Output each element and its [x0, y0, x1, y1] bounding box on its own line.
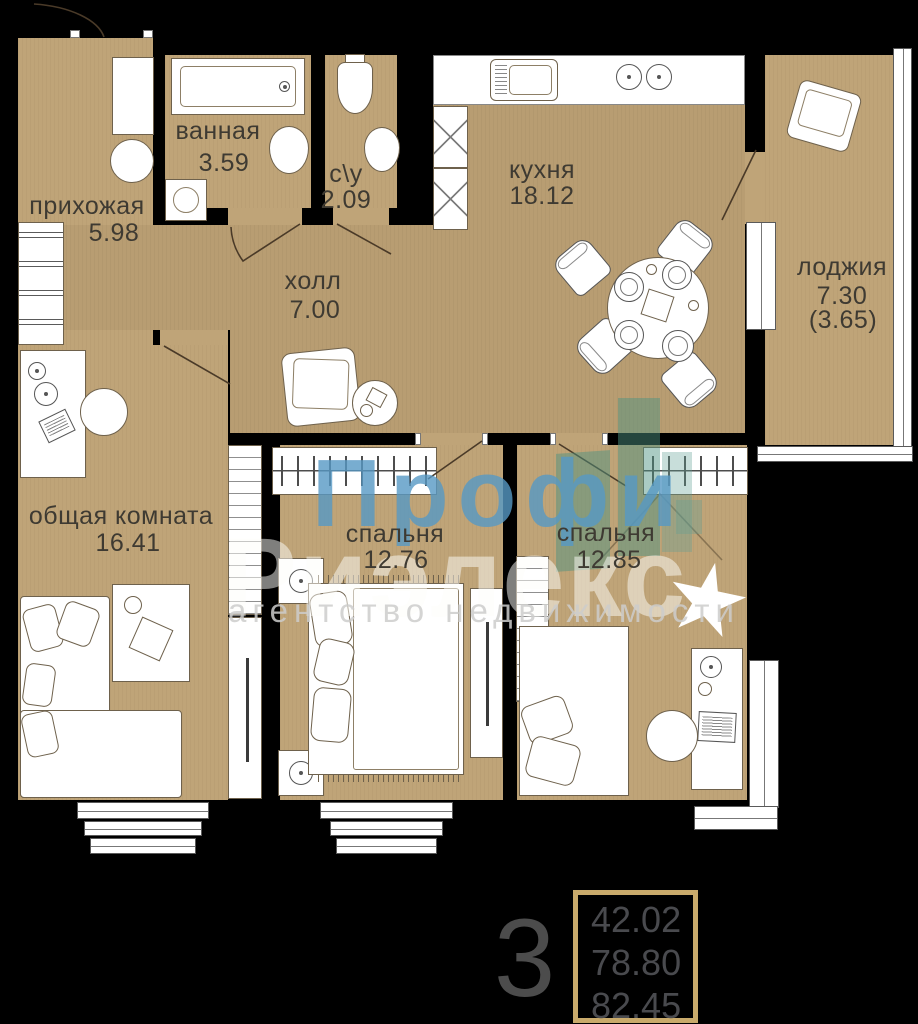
- label-entry-area: 5.98: [89, 221, 140, 246]
- label-living-name: общая комната: [29, 504, 213, 529]
- cup: [688, 300, 699, 311]
- label-wc-area: 2.09: [321, 188, 372, 213]
- window-bedroom1-sill: [330, 821, 443, 836]
- kitchen-counter: [433, 55, 745, 105]
- plate: [614, 272, 644, 302]
- loggia-glazing-right: [893, 48, 912, 462]
- loggia-glazing-bottom: [757, 446, 913, 462]
- hall-armchair: [280, 346, 361, 427]
- tv-console-living: [228, 617, 262, 799]
- window-bedroom2-corner-v: [749, 660, 779, 808]
- floor-plan-image: Профи Риэлекс агентство недвижимости при…: [0, 0, 918, 1024]
- cup: [646, 264, 657, 275]
- coffee-cup: [124, 596, 142, 614]
- label-bathroom-area: 3.59: [199, 151, 250, 176]
- office-chair: [80, 388, 128, 436]
- desk-lamp-2: [700, 656, 722, 678]
- side-table-cup: [360, 404, 373, 417]
- area-summary-box: 42.02 78.80 82.45: [573, 890, 698, 1023]
- rooms-count: 3: [494, 904, 555, 1014]
- label-loggia-name: лоджия: [797, 255, 887, 280]
- desk-lamp: [28, 362, 46, 380]
- coat-hooks: [18, 222, 64, 345]
- label-hall-name: холл: [285, 269, 342, 294]
- label-bathroom-name: ванная: [176, 119, 261, 144]
- rug-fringe: [318, 774, 462, 782]
- plate: [662, 330, 694, 362]
- kitchen-sink: [490, 59, 558, 101]
- living-area-value: 42.02: [591, 898, 693, 941]
- door-gap-loggia: [745, 152, 765, 224]
- window-living: [77, 802, 209, 819]
- label-bedroom2-area: 12.85: [576, 548, 641, 573]
- window-bedroom2-corner-h: [694, 806, 778, 830]
- window-bedroom1-sill-outer: [336, 838, 437, 854]
- label-kitchen-name: кухня: [509, 158, 575, 183]
- desk-lamp-shade: [34, 382, 58, 406]
- total-area-value: 82.45: [591, 984, 693, 1024]
- label-hall-area: 7.00: [290, 298, 341, 323]
- window-kitchen-loggia: [746, 222, 776, 330]
- window-living-sill-outer: [90, 838, 196, 854]
- label-loggia-area-reduced: (3.65): [809, 308, 877, 333]
- door-jamb: [143, 30, 153, 38]
- desk-lamp-2-base: [698, 682, 712, 696]
- label-bedroom2-name: спальня: [557, 521, 655, 546]
- door-jamb: [70, 30, 80, 38]
- kitchen-tall-cabinet: [433, 106, 468, 168]
- entrance-door-arc: [34, 4, 104, 37]
- plate: [662, 260, 692, 290]
- door-gap-bathroom: [228, 208, 302, 225]
- label-kitchen-area: 18.12: [509, 184, 574, 209]
- label-bedroom1-name: спальня: [346, 522, 444, 547]
- label-wc-name: с\у: [329, 162, 362, 187]
- window-bedroom1: [320, 802, 453, 819]
- label-entry-name: прихожая: [29, 194, 144, 219]
- door-gap-living: [160, 330, 228, 345]
- bed-pillow: [310, 686, 353, 743]
- entry-cabinet: [112, 57, 154, 135]
- office-chair-2: [646, 710, 698, 762]
- label-bedroom1-area: 12.76: [363, 548, 428, 573]
- toilet-bowl: [337, 62, 373, 114]
- bathtub: [171, 58, 305, 115]
- window-living-sill: [84, 821, 202, 836]
- apartment-area-value: 78.80: [591, 941, 693, 984]
- sofa-pillow: [21, 662, 57, 708]
- ceiling-light: [110, 139, 154, 183]
- plate: [614, 320, 644, 350]
- label-living-area: 16.41: [95, 531, 160, 556]
- washing-machine: [165, 179, 207, 221]
- laptop-2: [697, 711, 737, 743]
- tv-living: [246, 658, 249, 762]
- watermark-tagline: агентство недвижимости: [228, 592, 740, 630]
- kitchen-tall-cabinet-2: [433, 168, 468, 230]
